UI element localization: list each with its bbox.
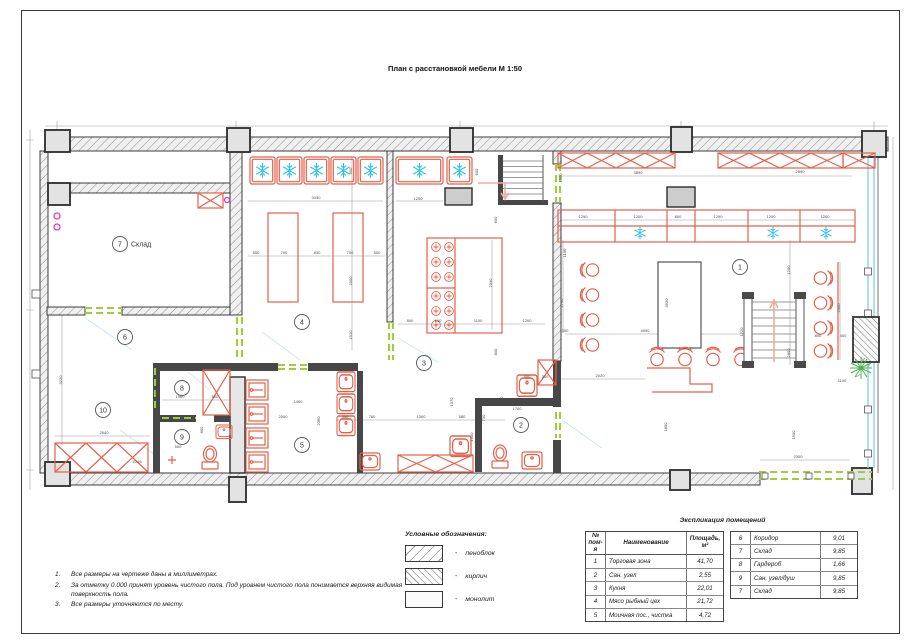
dimension-label: 550 [253, 250, 260, 255]
dimension-label: 3520 [664, 298, 669, 308]
header-name: Наименование [606, 532, 687, 554]
dimension-label: 1400 [294, 399, 304, 404]
dimension-label: 3220 [58, 375, 63, 385]
dimension-label: 1200 [414, 196, 424, 201]
room-bubble: 10 [96, 403, 111, 418]
legend-label: кирпич [465, 573, 487, 580]
schedule-row: 1Торговая зона41,70 [586, 555, 723, 568]
note-item: 3.Все размеры уточняются по месту. [55, 601, 403, 610]
svg-text:8: 8 [180, 386, 184, 393]
legend-item: -монолит [405, 591, 495, 608]
header-area: Площадь, м² [687, 532, 723, 554]
dimension-label: 1500 [469, 432, 474, 442]
cell-name: Коридор [751, 532, 821, 544]
cell-area: 21,72 [687, 596, 723, 608]
schedule-row: 5Моичная пос., чистка4,72 [586, 609, 723, 621]
dimension-label: 3330 [312, 195, 322, 200]
dimension-label: 1100 [838, 378, 847, 383]
legend-dash: - [455, 596, 457, 603]
dimension-label: 1800 [663, 422, 668, 432]
cell-num: 4 [586, 596, 606, 608]
entrance-vestibule [853, 317, 879, 362]
cell-name: Кухня [606, 582, 687, 594]
legend: Условные обозначения: -пеноблок-кирпич-м… [405, 531, 495, 614]
cell-area: 41,70 [687, 555, 723, 567]
legend-item: -пеноблок [405, 545, 495, 562]
svg-text:1: 1 [738, 265, 742, 272]
legend-label: пеноблок [465, 550, 495, 557]
room-bubble: 1 [733, 260, 748, 275]
svg-text:7: 7 [118, 242, 122, 249]
legend-dash: - [455, 550, 457, 557]
svg-text:3: 3 [422, 361, 426, 368]
dimension-label: 1230 [154, 432, 159, 442]
legend-item: -кирпич [405, 568, 495, 585]
dimension-label: 600 [493, 216, 498, 223]
freezer-snowflakes [257, 164, 466, 178]
dimension-label: 1100 [474, 318, 483, 323]
solid-swatch [405, 591, 443, 608]
cell-name: Сан. узел [606, 569, 687, 581]
schedule-title: Экспликация помещений [585, 517, 860, 524]
cell-num: 2 [586, 569, 606, 581]
legend-dash: - [455, 573, 457, 580]
schedule-table-right: 6Коридор9,017Склад9,858Гардероб1,669Сан.… [730, 531, 858, 599]
schedule-row: 2Сан. узел2,55 [586, 569, 723, 582]
notes: 1.Все размеры на чертеже даны в миллимет… [55, 571, 403, 612]
dimension-label: 730 [481, 414, 486, 421]
dimension-label: 800 [815, 333, 822, 338]
cell-num: 6 [731, 532, 751, 544]
staircase-trade-zone [742, 292, 806, 368]
dimension-label: 1500 [791, 430, 796, 440]
dimension-label: 770 [499, 396, 504, 403]
cell-name: Мясо рыбный цех [606, 596, 687, 608]
dimension-label: 1700 [513, 406, 523, 411]
freezers-meat-shop [250, 157, 472, 184]
toilet-icon [202, 446, 218, 469]
schedule-row: 8Гардероб1,66 [731, 559, 857, 572]
dimension-label: 400 [840, 333, 847, 338]
dimension-label: 2300 [836, 303, 841, 313]
dimension-label: 1290 [714, 214, 724, 219]
cell-area: 22,01 [687, 582, 723, 594]
dimension-label: 500 [374, 250, 381, 255]
schedule-row: 6Коридор9,01 [731, 532, 857, 545]
windows [865, 158, 875, 468]
cell-area: 4,72 [687, 609, 723, 621]
dimension-label: 600 [348, 167, 353, 174]
note-item: 2.За отметку 0.000 принят уровень чистог… [55, 582, 403, 600]
cell-area: 9,85 [821, 586, 857, 598]
brick-swatch [405, 568, 443, 585]
schedule-row: 7Склад9,85 [731, 586, 857, 598]
work-tables-meat-shop [268, 213, 363, 302]
cell-num: 7 [731, 545, 751, 557]
cell-area: 1,66 [821, 559, 857, 571]
staircase-kitchen [478, 161, 543, 199]
bar-counter [647, 368, 712, 392]
room-bubble: 6 [118, 330, 133, 345]
schedule-header: № пом-я Наименование Площадь, м² [586, 532, 723, 555]
sink-icon [337, 394, 355, 414]
cell-name: Склад [751, 586, 821, 598]
door-markers [54, 198, 230, 231]
lockers [246, 380, 268, 472]
cell-num: 5 [586, 609, 606, 621]
dimension-label: 1200 [821, 214, 831, 219]
schedule-row: 4Мясо рыбный цех21,72 [586, 596, 723, 609]
cell-num: 7 [731, 586, 751, 598]
dimension-label: 450 [342, 414, 349, 419]
cell-name: Сан. узел/душ [751, 572, 821, 584]
dimension-label: 2540 [100, 430, 110, 435]
cell-area: 2,55 [687, 569, 723, 581]
dimension-label: 300 [542, 374, 549, 379]
dimension-label: 2000 [279, 414, 289, 419]
svg-text:2: 2 [519, 423, 523, 430]
dimension-label: 700 [281, 250, 288, 255]
service-counter [558, 210, 855, 242]
dimension-label: 1720 [739, 327, 744, 337]
schedule-row: 9Сан. узел/душ9,85 [731, 572, 857, 585]
dimension-label: 800 [675, 214, 682, 219]
cell-area: 9,85 [821, 545, 857, 557]
room-schedule: Экспликация помещений № пом-я Наименован… [585, 517, 860, 622]
cell-name: Моичная пос., чистка [606, 609, 687, 621]
dimension-label: 600 [474, 168, 479, 175]
dimension-label: 2020 [596, 373, 606, 378]
schedule-row: 3Кухня22,01 [586, 582, 723, 595]
sink-icon [337, 372, 355, 392]
dimension-label: 1200 [634, 214, 644, 219]
toilet-icon [492, 445, 508, 468]
dimension-label: 800 [407, 318, 414, 323]
room-bubble: 5 [295, 438, 310, 453]
dimension-label: 600 [212, 394, 219, 399]
dimension-label: 2010 [358, 400, 363, 410]
dimension-label: 800 [493, 348, 498, 355]
drawing-sheet: План с расстановкой мебели М 1:50 [0, 0, 910, 644]
dimension-label: 2330 [488, 278, 493, 288]
room-bubble: 3 [417, 356, 432, 371]
dimension-label: 1300 [558, 173, 563, 183]
schedule-row: 7Склад9,85 [731, 545, 857, 558]
dimension-label: 2890 [796, 169, 806, 174]
room-bubble: 7Склад [113, 237, 152, 252]
dimension-label: 4090 [641, 328, 651, 333]
legend-label: монолит [465, 596, 494, 603]
cell-area: 9,01 [821, 532, 857, 544]
leader-lines [85, 318, 602, 455]
dimension-label: 1510 [348, 330, 353, 340]
counter-snowflakes [635, 227, 831, 239]
dimension-label: 1200 [767, 214, 777, 219]
header-number: № пом-я [586, 532, 606, 554]
schedule-table-left: № пом-я Наименование Площадь, м² 1Торгов… [585, 531, 724, 622]
cell-area: 9,85 [821, 572, 857, 584]
room-bubble: 4 [295, 315, 310, 330]
dimension-label: 700 [347, 250, 354, 255]
room-bubble: 8 [175, 381, 190, 396]
dimension-label: 2360 [316, 416, 321, 426]
dimension-label: 600 [435, 318, 442, 323]
svg-text:5: 5 [300, 443, 304, 450]
svg-text:6: 6 [123, 335, 127, 342]
dimension-label: 1100 [562, 248, 567, 257]
cell-name: Торговая зона [606, 555, 687, 567]
cell-num: 3 [586, 582, 606, 594]
svg-text:9: 9 [180, 435, 184, 442]
sink-icon [522, 452, 542, 469]
legend-title: Условные обозначения: [405, 531, 495, 538]
dimension-label: 3890 [634, 170, 644, 175]
dimension-label: 580 [459, 414, 466, 419]
dimension-label: 550 [524, 374, 531, 379]
cell-num: 1 [586, 555, 606, 567]
cell-num: 9 [731, 572, 751, 584]
cell-name: Склад [751, 545, 821, 557]
dimension-label: 2700 [559, 298, 564, 308]
dimension-label: 1200 [786, 265, 791, 275]
room-bubble: 2 [514, 418, 529, 433]
dimension-label: 1200 [523, 318, 533, 323]
dimension-label: 1000 [154, 388, 159, 398]
dimension-label: 760 [369, 414, 376, 419]
dimension-label: 10.91 [132, 459, 143, 464]
sink-icon [450, 436, 471, 456]
dimension-label: 1300 [417, 414, 427, 419]
room-name-label: Склад [131, 242, 151, 249]
foam-swatch [405, 545, 443, 562]
dimension-label: 300 [562, 328, 569, 333]
dimension-label: 2000 [348, 276, 353, 286]
dimension-label: 830 [314, 250, 321, 255]
room-bubble: 9 [175, 430, 190, 445]
dimension-label: 1070 [449, 397, 454, 407]
dimension-label: 2300 [794, 454, 804, 459]
svg-text:4: 4 [300, 320, 304, 327]
dimension-label: 800 [199, 426, 204, 433]
cell-num: 8 [731, 559, 751, 571]
cell-name: Гардероб [751, 559, 821, 571]
dimension-label: 2800 [786, 348, 791, 358]
note-item: 1.Все размеры на чертеже даны в миллимет… [55, 571, 403, 580]
svg-text:10: 10 [99, 408, 107, 415]
dimension-label: 1290 [579, 214, 589, 219]
